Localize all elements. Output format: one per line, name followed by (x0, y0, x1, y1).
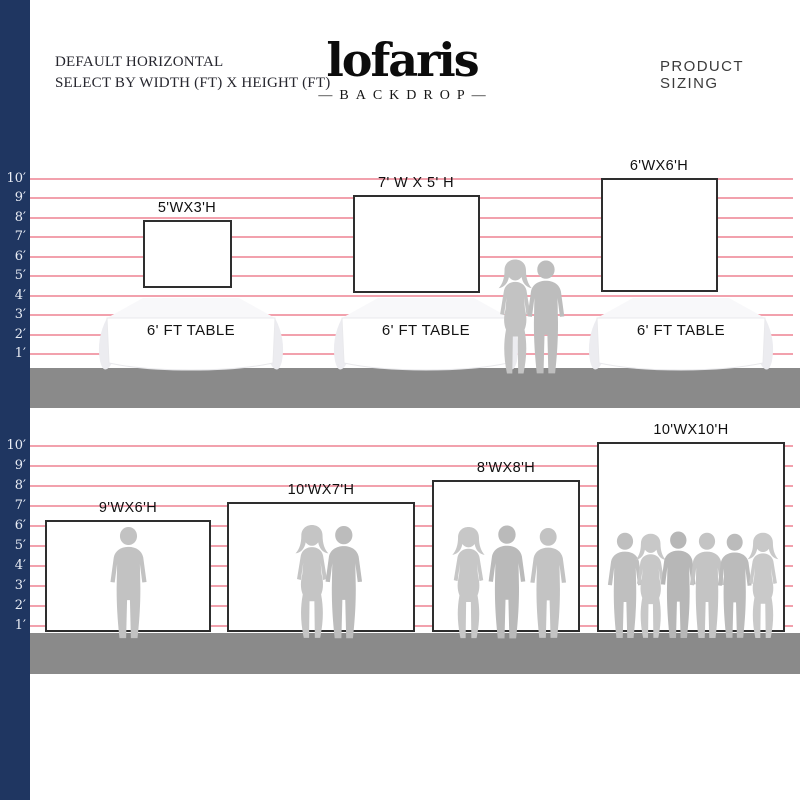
top-ruler-label: 8′ (0, 210, 26, 226)
table-2-label: 6' FT TABLE (346, 322, 506, 339)
group-silhouette (598, 520, 786, 640)
top-ruler-label: 1′ (0, 346, 26, 362)
bottom-ruler-label: 1′ (0, 618, 26, 634)
table-1-graphic (91, 297, 291, 381)
brand-logo-subtext: —BACKDROP— (252, 88, 552, 104)
bottom-ruler-label: 6′ (0, 518, 26, 534)
bottom-ruler-label: 10′ (0, 438, 26, 454)
top-ruler-label: 2′ (0, 327, 26, 343)
one-person-silhouette (101, 520, 157, 640)
backdrop-6x6-label: 6'WX6'H (589, 158, 729, 174)
top-ruler-label: 5′ (0, 268, 26, 284)
page-title: PRODUCT SIZING (660, 58, 795, 92)
backdrop-6x6 (601, 178, 718, 292)
bottom-ruler-label: 9′ (0, 458, 26, 474)
backdrop-10x10-label: 10'WX10'H (621, 422, 761, 438)
table-3-graphic (581, 297, 781, 381)
bottom-ruler-label: 3′ (0, 578, 26, 594)
table-3-label: 6' FT TABLE (601, 322, 761, 339)
backdrop-9x6-label: 9'WX6'H (58, 500, 198, 516)
brand-logo: lofaris (252, 34, 552, 86)
bottom-ruler-label: 2′ (0, 598, 26, 614)
backdrop-10x7-label: 10'WX7'H (251, 482, 391, 498)
three-person-silhouette (438, 520, 574, 640)
top-ruler-label: 4′ (0, 288, 26, 304)
product-sizing-infographic: DEFAULT HORIZONTAL SELECT BY WIDTH (FT) … (0, 0, 800, 800)
backdrop-8x8-label: 8'WX8'H (436, 460, 576, 476)
top-ruler-label: 3′ (0, 307, 26, 323)
bottom-ruler-label: 5′ (0, 538, 26, 554)
bottom-ruler-label: 7′ (0, 498, 26, 514)
table-1-label: 6' FT TABLE (111, 322, 271, 339)
backdrop-5x3 (143, 220, 232, 288)
backdrop-7x5-label: 7' W X 5' H (346, 175, 486, 191)
top-ruler-label: 10′ (0, 171, 26, 187)
ruler-bar (0, 0, 30, 800)
bottom-ruler-label: 8′ (0, 478, 26, 494)
top-ruler-label: 7′ (0, 229, 26, 245)
two-person-silhouette (281, 520, 365, 640)
top-ruler-label: 9′ (0, 190, 26, 206)
top-ruler-label: 6′ (0, 249, 26, 265)
bottom-ruler-label: 4′ (0, 558, 26, 574)
backdrop-7x5 (353, 195, 480, 293)
couple-silhouette-top (487, 256, 571, 376)
backdrop-5x3-label: 5'WX3'H (117, 200, 257, 216)
